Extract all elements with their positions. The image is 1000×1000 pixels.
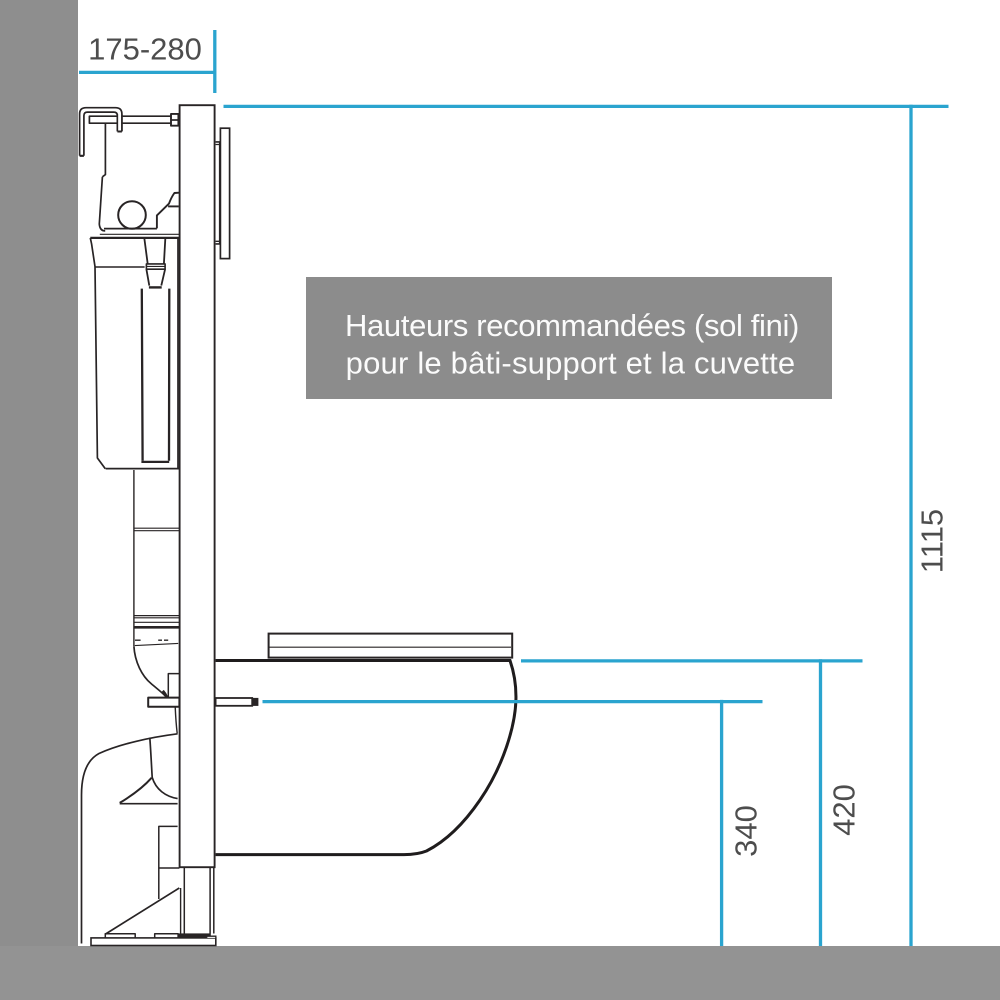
svg-text:420: 420 [827,784,862,836]
svg-text:340: 340 [729,805,764,857]
svg-text:175-280: 175-280 [88,32,202,67]
svg-text:1115: 1115 [915,509,950,573]
svg-text:pour le bâti-support et la cuv: pour le bâti-support et la cuvette [346,346,796,381]
svg-text:Hauteurs recommandées (sol fin: Hauteurs recommandées (sol fini) [345,308,799,343]
